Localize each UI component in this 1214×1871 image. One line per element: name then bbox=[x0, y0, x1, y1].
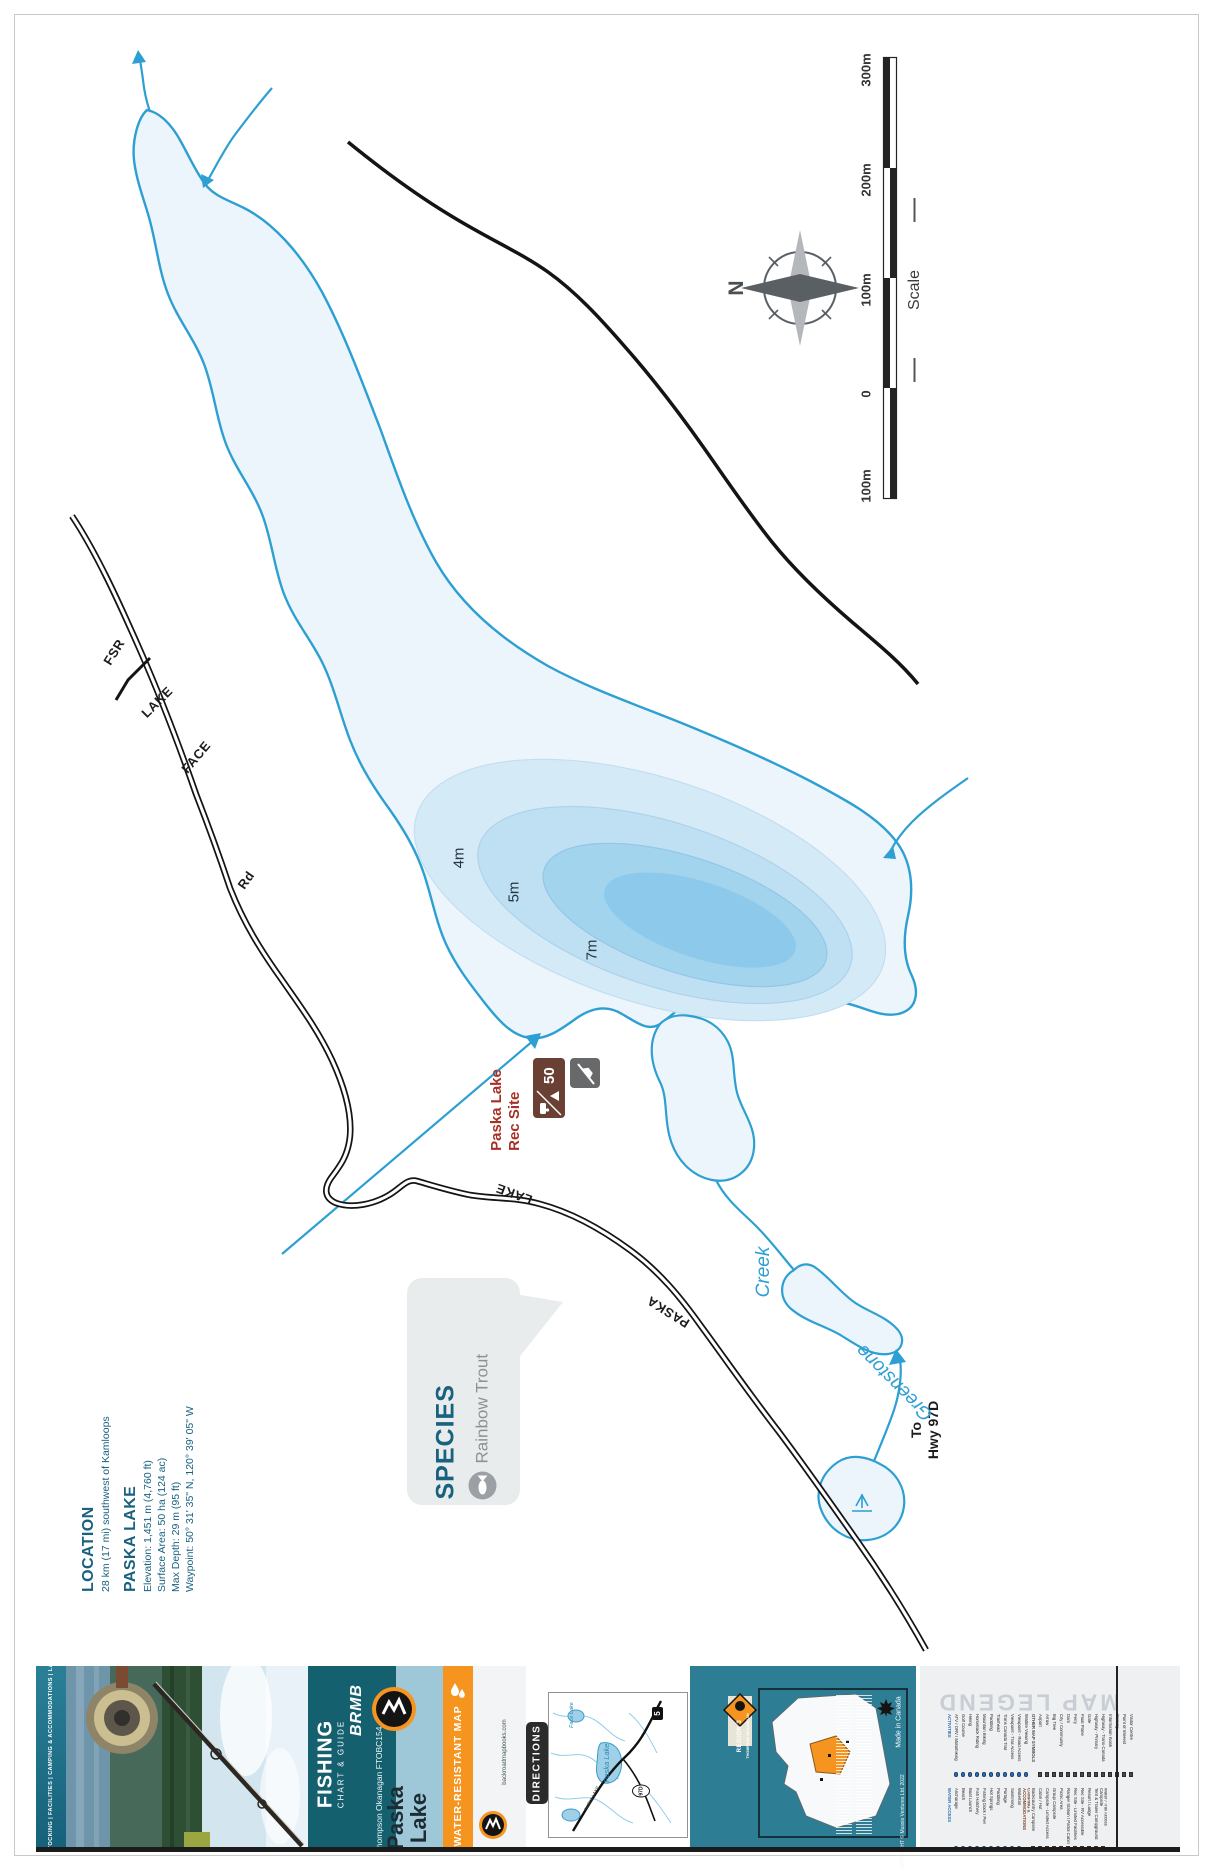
fishing-map-page: N 300m 200m 100m 0 100m Scale 4m 5m 7m F… bbox=[0, 0, 1214, 1871]
page-border bbox=[14, 14, 1199, 1856]
